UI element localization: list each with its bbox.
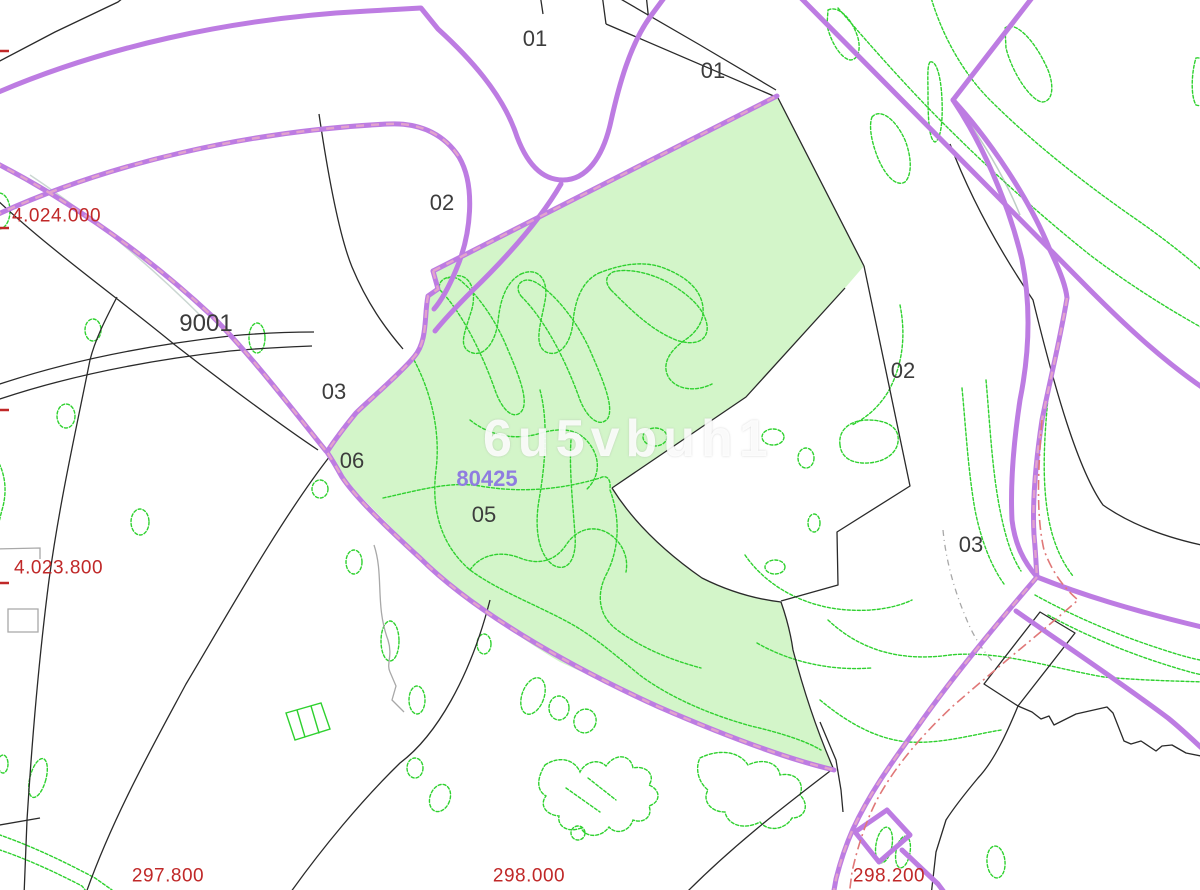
grid-northing-label-1: 4.024.000 (12, 207, 101, 226)
watermark: 6u5vbuh1 (483, 413, 774, 465)
parcel-label-05: 05 (472, 504, 496, 526)
parcel-label-03-right: 03 (959, 534, 983, 556)
boundary-dash-dot (849, 420, 1078, 890)
cadastral-map-canvas[interactable]: 6u5vbuh1 01 01 02 02 03 03 06 9001 80425… (0, 0, 1200, 890)
building-footprint-green (286, 703, 330, 740)
grid-ticks (0, 51, 9, 583)
parcel-label-03-left: 03 (322, 381, 346, 403)
parcel-label-01-right: 01 (701, 60, 725, 82)
parcel-label-02-top: 02 (430, 192, 454, 214)
grid-easting-label-3: 298.200 (853, 867, 925, 886)
grid-easting-label-1: 297.800 (132, 867, 204, 886)
grid-easting-label-2: 298.000 (493, 867, 565, 886)
parcel-label-01-top: 01 (523, 28, 547, 50)
highlighted-parcel-code: 80425 (456, 468, 517, 490)
parcel-label-06: 06 (340, 450, 364, 472)
parcel-label-9001: 9001 (179, 312, 232, 336)
road-loop (855, 810, 910, 862)
parcel-label-02-right: 02 (891, 360, 915, 382)
grid-northing-label-2: 4.023.800 (14, 559, 103, 578)
